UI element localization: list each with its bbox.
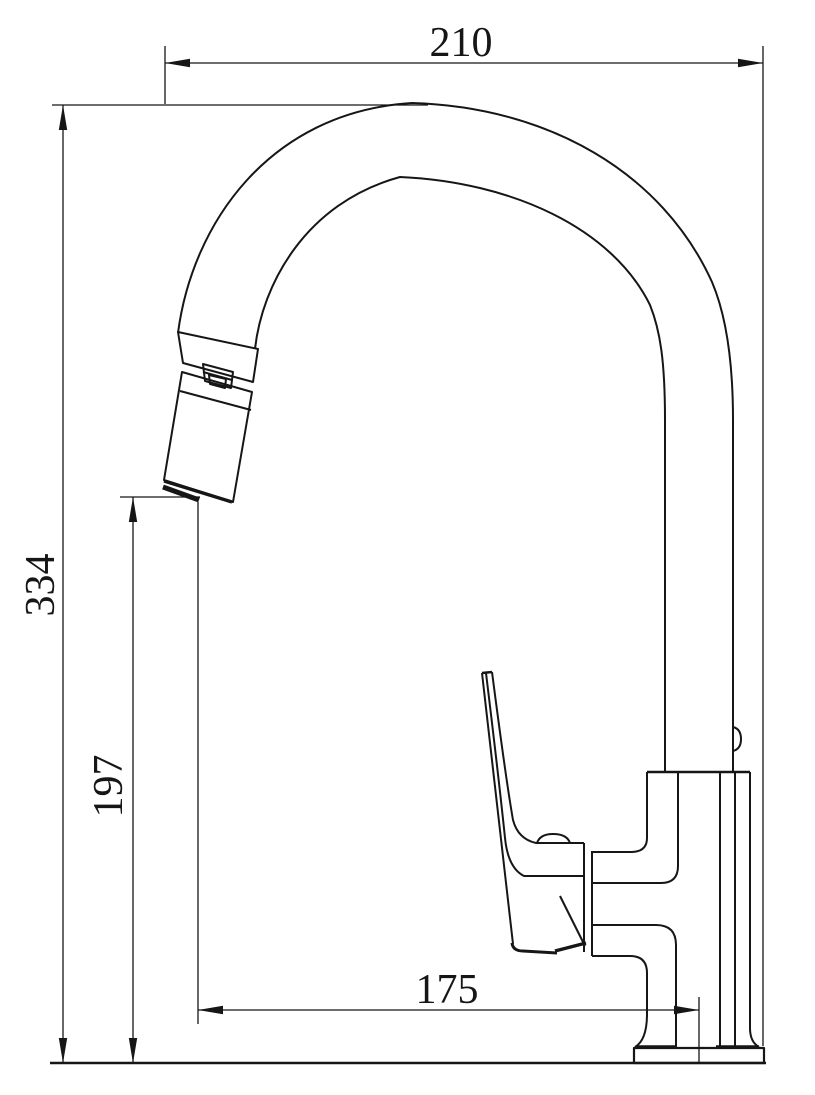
faucet-dimension-drawing: 210 334 197 175 — [0, 0, 815, 1095]
arrowhead-icon — [198, 1006, 223, 1014]
arrowhead-icon — [59, 105, 67, 130]
spray-head-seam — [180, 391, 251, 410]
dimension-label-spout-height: 197 — [86, 755, 132, 818]
dimension-label-spout-reach: 175 — [416, 967, 479, 1013]
dimension-label-top-width: 210 — [430, 20, 493, 66]
body-column-right-edge — [750, 772, 759, 1047]
handle-skirt-bottom — [512, 943, 557, 953]
faucet-body — [592, 772, 759, 1047]
dimension-label-overall-height: 334 — [18, 554, 64, 617]
arrowhead-icon — [165, 59, 190, 67]
spray-head-body — [164, 372, 252, 502]
dimension-spout-height: 197 — [86, 497, 200, 1063]
handle-blade-inner-line — [486, 673, 584, 876]
arrowhead-icon — [738, 59, 763, 67]
gooseneck-spout — [178, 103, 741, 772]
handle-lever — [482, 672, 586, 953]
outer-spout-curve — [178, 103, 733, 772]
spray-head — [163, 332, 258, 502]
handle-tip-edge — [482, 672, 492, 673]
handle-dome-cap — [537, 834, 570, 843]
body-step-upper-inner — [592, 772, 678, 883]
body-step-lower-outer — [592, 956, 647, 1047]
drawing-canvas: 210 334 197 175 — [0, 0, 815, 1095]
arrowhead-icon — [59, 1038, 67, 1063]
faucet-outline — [50, 103, 766, 1063]
handle-blade-right-edge — [492, 672, 584, 843]
dimension-overall-height: 334 — [18, 105, 428, 1063]
handle-skirt-contact — [555, 943, 586, 951]
hose-clip-bump — [733, 727, 741, 751]
arrowhead-icon — [674, 1006, 699, 1014]
handle-skirt-diagonal — [560, 896, 585, 946]
arrowhead-icon — [129, 497, 137, 522]
arrowhead-icon — [129, 1038, 137, 1063]
dimension-top-width: 210 — [165, 20, 763, 1046]
body-step-upper-outer — [592, 772, 647, 852]
inner-spout-curve — [255, 177, 665, 772]
dimension-spout-reach: 175 — [198, 502, 699, 1062]
body-step-lower-inner — [592, 925, 676, 1047]
